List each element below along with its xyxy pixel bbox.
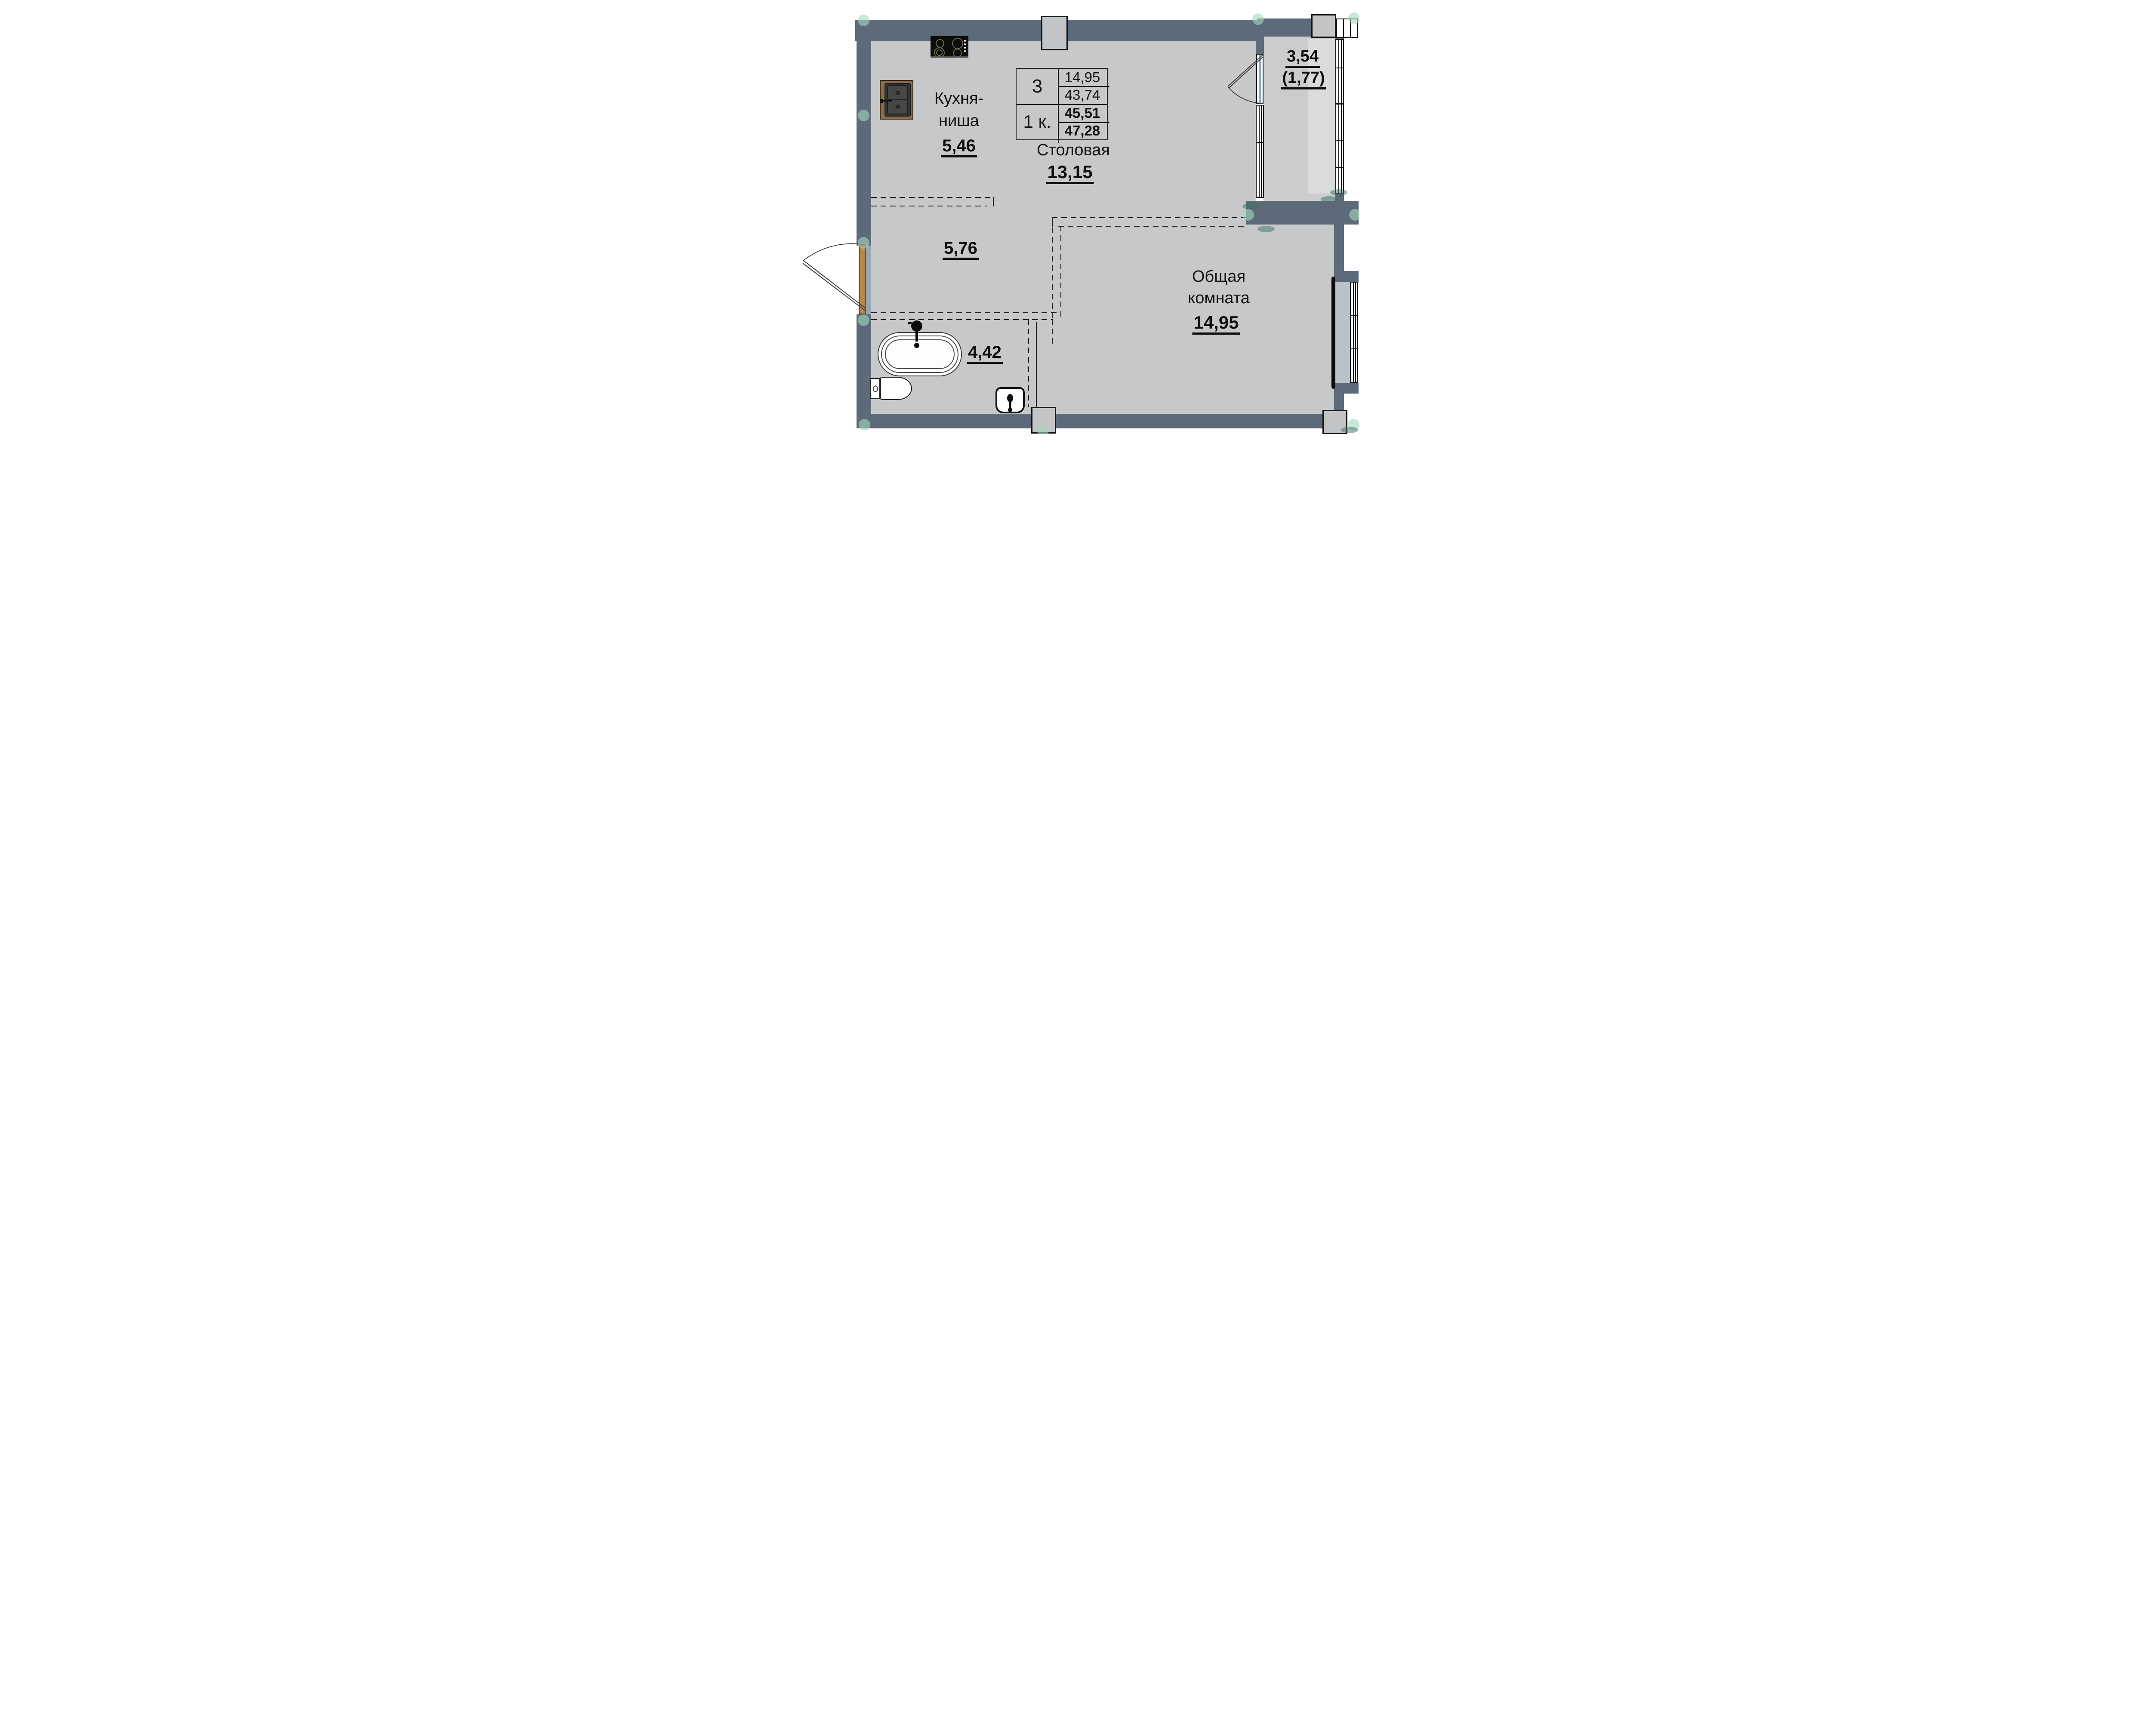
stat-area-total: 47,28 <box>1058 122 1107 139</box>
kitchen-sink-icon <box>880 80 913 120</box>
stove-icon <box>931 36 968 58</box>
corner-marker-icon <box>1242 209 1254 221</box>
living-label-line1: Общая <box>1192 268 1245 286</box>
balcony-partition-stub <box>1256 37 1264 54</box>
balcony-area: 3,54 <box>1285 48 1320 68</box>
hall-bottom-dashed-2 <box>871 319 1053 320</box>
bathroom-partition-dashed <box>1028 319 1029 407</box>
washbasin-icon <box>995 387 1025 413</box>
partition-window <box>1256 105 1264 198</box>
balcony-door <box>1256 54 1263 104</box>
entrance-door-swing-icon <box>803 244 865 311</box>
stat-unit-type: 1 к. <box>1017 104 1058 139</box>
corner-marker-icon <box>1252 13 1264 25</box>
bottom-wall <box>857 414 1344 428</box>
toilet-icon <box>870 378 880 399</box>
kitchen-area: 5,46 <box>941 137 977 157</box>
balcony-area-reduced: (1,77) <box>1281 70 1326 89</box>
corner-marker-icon <box>1242 203 1260 209</box>
corner-marker-icon <box>1037 425 1049 434</box>
living-top-wall <box>1246 201 1359 225</box>
hall-partition-dashed-1 <box>1052 218 1053 320</box>
corner-marker-icon <box>1341 427 1358 433</box>
living-area: 14,95 <box>1192 313 1240 335</box>
corner-marker-icon <box>858 237 869 249</box>
corner-marker-icon <box>1321 196 1338 203</box>
bathroom-partition-solid <box>1036 322 1037 407</box>
pillar-top-right <box>1311 14 1336 38</box>
bay-top-wall <box>1334 271 1359 282</box>
floor-plan: 3 1 к. 14,95 43,74 45,51 47,28 Кухня- ни… <box>792 0 1359 434</box>
balcony-window-upper <box>1335 39 1344 104</box>
entrance-jamb <box>865 246 871 314</box>
corner-marker-icon <box>859 419 870 431</box>
corner-marker-icon <box>1348 12 1359 24</box>
kitchen-label-line1: Кухня- <box>934 90 983 108</box>
dining-label: Столовая <box>1037 142 1110 159</box>
kitchen-partition-dashed-1 <box>871 197 994 198</box>
window-sill-floor <box>1335 282 1350 383</box>
apartment-stat-table: 3 1 к. 14,95 43,74 45,51 47,28 <box>1016 68 1108 140</box>
balcony-door-glass <box>1259 55 1261 103</box>
stat-rooms-count: 3 <box>1017 69 1058 104</box>
stat-area-no-balcony: 45,51 <box>1058 104 1107 122</box>
corner-marker-icon <box>858 110 869 121</box>
stat-area-mid: 43,74 <box>1058 86 1107 104</box>
kitchen-label-line2: ниша <box>939 113 979 130</box>
hall-area: 5,76 <box>943 239 979 260</box>
corner-marker-icon <box>1257 226 1275 232</box>
living-partition-dashed-2 <box>1058 226 1246 227</box>
radiator-icon <box>1331 277 1335 389</box>
corner-marker-icon <box>858 15 869 26</box>
bay-bottom-wall <box>1334 383 1359 394</box>
dining-area: 13,15 <box>1046 163 1094 184</box>
bathtub-icon <box>878 332 962 376</box>
right-wall-upper <box>1334 225 1344 271</box>
kitchen-partition-dashed-2 <box>871 206 987 206</box>
living-room-floor <box>1256 225 1334 415</box>
toilet-bowl-icon <box>880 377 912 400</box>
corner-marker-icon <box>858 314 869 326</box>
left-wall-upper <box>857 20 871 246</box>
hall-bottom-dashed-1 <box>871 312 1060 313</box>
kitchen-partition-cap <box>993 197 994 206</box>
hall-partition-dashed-3 <box>1052 319 1053 345</box>
living-room-window <box>1350 282 1358 383</box>
balcony-window-lower <box>1335 104 1344 194</box>
vent-shaft-top <box>1041 16 1068 50</box>
hall-partition-dashed-2 <box>1060 226 1061 318</box>
bathroom-area: 4,42 <box>967 343 1003 364</box>
living-label-line2: комната <box>1188 290 1250 307</box>
balcony-top-wall <box>1257 18 1311 37</box>
left-wall-lower <box>857 314 871 428</box>
entrance-door <box>859 246 866 314</box>
corner-marker-icon <box>1330 189 1347 196</box>
living-partition-dashed-1 <box>1052 217 1246 218</box>
corner-marker-icon <box>1349 209 1359 221</box>
stat-living-area: 14,95 <box>1058 69 1107 86</box>
